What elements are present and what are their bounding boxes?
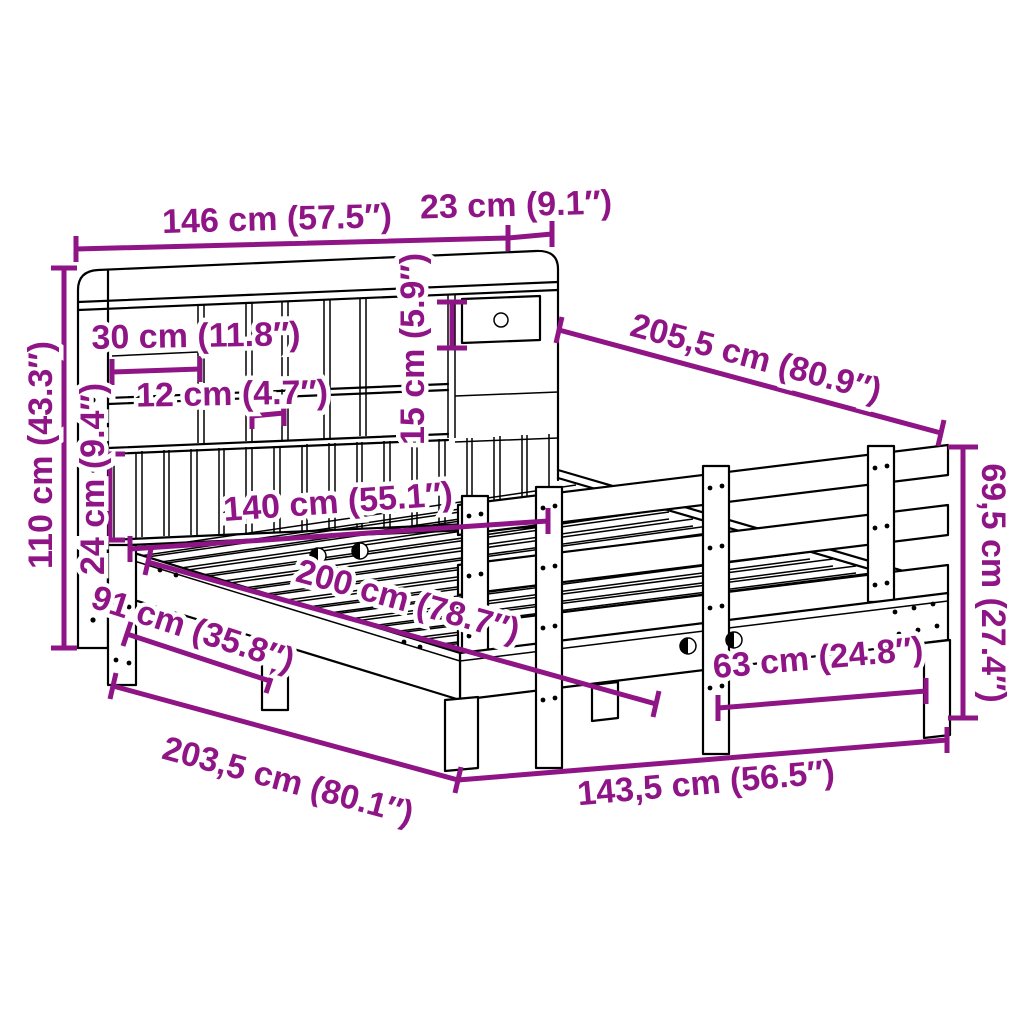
dim-label-side-shelf-width: 23 cm (9.1″): [420, 183, 613, 226]
dim-label-drawer-height: 15 cm (5.9″): [394, 253, 432, 445]
dim-line-footboard-height: [948, 447, 978, 718]
dim-label-inner-width: 140 cm (55.1″): [222, 475, 454, 529]
dim-label-niche-width: 12 cm (4.7″): [136, 373, 329, 414]
headboard-drawer: [462, 296, 540, 343]
near-foot-leg: [445, 697, 478, 771]
right-section-shelves: [455, 392, 558, 442]
dim-line-side-shelf-width: [508, 221, 552, 247]
dim-line-foot-leg-span: [718, 678, 926, 721]
bed-dimension-diagram: 146 cm (57.5″) 23 cm (9.1″) 30 cm (11.8″…: [0, 0, 1024, 1024]
dim-label-footboard-height: 69,5 cm (27.4″): [974, 463, 1012, 702]
dim-label-compartment-width: 30 cm (11.8″): [91, 315, 301, 357]
dim-label-headboard-width: 146 cm (57.5″): [162, 197, 393, 241]
dim-label-slat-panel-height: 24 cm (9.4″): [74, 383, 112, 575]
footboard-post-4: [868, 446, 894, 602]
dim-label-headboard-height: 110 cm (43.3″): [22, 341, 60, 569]
dim-label-frame-length: 203,5 cm (80.1″): [158, 729, 417, 833]
diagram-canvas: 146 cm (57.5″) 23 cm (9.1″) 30 cm (11.8″…: [0, 0, 1024, 1024]
